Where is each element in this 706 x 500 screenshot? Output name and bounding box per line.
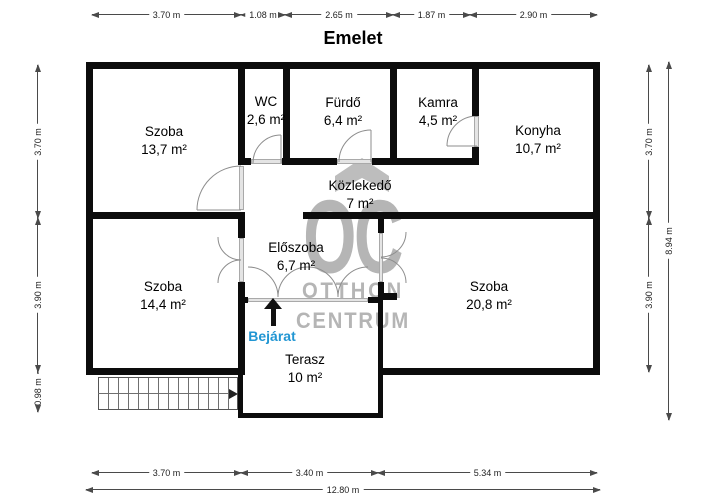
dimension-line: 3.70 m — [92, 14, 241, 15]
dimension-label: 8.94 m — [664, 223, 674, 259]
room-label-kozlekedo: Közlekedő 7 m² — [328, 177, 391, 213]
dimension-line: 1.87 m — [393, 14, 470, 15]
dimension-label: 3.70 m — [149, 468, 185, 478]
plan-title: Emelet — [0, 28, 706, 49]
dimension-line: 3.70 m — [648, 65, 649, 218]
wall — [378, 303, 383, 418]
wall — [238, 297, 248, 303]
dimension-line: 1.08 m — [241, 14, 285, 15]
room-name: WC — [247, 93, 285, 111]
dimension-label: 12.80 m — [323, 485, 364, 495]
room-name: Konyha — [515, 122, 561, 140]
room-name: Kamra — [418, 94, 458, 112]
dimension-label: 1.87 m — [414, 10, 450, 20]
wall — [245, 158, 251, 165]
room-label-eloszoba: Előszoba 6,7 m² — [268, 239, 324, 275]
room-label-szoba-137: Szoba 13,7 m² — [141, 123, 187, 159]
room-label-konyha: Konyha 10,7 m² — [515, 122, 561, 158]
dimension-label: 5.34 m — [470, 468, 506, 478]
dimension-line: 3.70 m — [92, 472, 241, 473]
room-label-furdo: Fürdő 6,4 m² — [324, 94, 362, 130]
dimension-line: 2.65 m — [285, 14, 393, 15]
wall — [372, 158, 479, 165]
dimension-label: 0.98 m — [33, 374, 43, 410]
room-name: Terasz — [285, 351, 325, 369]
room-name: Fürdő — [324, 94, 362, 112]
room-name: Szoba — [466, 278, 512, 296]
dimension-label: 3.70 m — [33, 124, 43, 160]
door-arcs — [0, 0, 706, 500]
entrance-arrowhead-icon — [264, 298, 282, 309]
room-name: Közlekedő — [328, 177, 391, 195]
room-name: Szoba — [141, 123, 187, 141]
dimension-line: 3.90 m — [37, 218, 38, 372]
wall — [238, 62, 245, 165]
entrance-label: Bejárat — [248, 328, 295, 344]
dimension-label: 2.90 m — [516, 10, 552, 20]
dimension-label: 1.08 m — [245, 10, 281, 20]
room-area: 4,5 m² — [418, 112, 458, 130]
dimension-label: 2.65 m — [321, 10, 357, 20]
room-area: 10 m² — [285, 369, 325, 387]
room-label-szoba-144: Szoba 14,4 m² — [140, 278, 186, 314]
room-label-kamra: Kamra 4,5 m² — [418, 94, 458, 130]
room-label-szoba-208: Szoba 20,8 m² — [466, 278, 512, 314]
dimension-line: 3.70 m — [37, 65, 38, 218]
wall — [86, 212, 245, 219]
wall — [303, 212, 600, 219]
wall — [378, 368, 600, 375]
room-area: 13,7 m² — [141, 141, 187, 159]
room-area: 6,4 m² — [324, 112, 362, 130]
dimension-label: 3.40 m — [292, 468, 328, 478]
wall — [390, 62, 397, 162]
dimension-line: 2.90 m — [470, 14, 597, 15]
wall — [238, 282, 245, 368]
wall — [383, 293, 397, 300]
wall — [238, 375, 243, 418]
wall — [238, 413, 383, 418]
wall — [86, 368, 245, 375]
wall — [378, 219, 384, 233]
dimension-line: 12.80 m — [86, 489, 600, 490]
dimension-line: 3.40 m — [241, 472, 378, 473]
room-area: 14,4 m² — [140, 296, 186, 314]
room-label-wc: WC 2,6 m² — [247, 93, 285, 129]
wall — [86, 62, 600, 69]
wall — [238, 219, 245, 238]
room-area: 2,6 m² — [247, 111, 285, 129]
dimension-line: 3.90 m — [648, 218, 649, 372]
dimension-label: 3.70 m — [149, 10, 185, 20]
room-area: 10,7 m² — [515, 140, 561, 158]
entrance-arrow-icon — [271, 308, 276, 326]
floor-plan: Emelet OC OTTHON CENTRUM — [0, 0, 706, 500]
dimension-label: 3.90 m — [33, 277, 43, 313]
dimension-line: 0.98 m — [37, 372, 38, 412]
dimension-label: 3.70 m — [644, 124, 654, 160]
room-name: Előszoba — [268, 239, 324, 257]
room-area: 6,7 m² — [268, 257, 324, 275]
room-name: Szoba — [140, 278, 186, 296]
wall — [282, 158, 337, 165]
dimension-line: 8.94 m — [668, 62, 669, 420]
wall — [472, 62, 479, 116]
dimension-label: 3.90 m — [644, 277, 654, 313]
room-area: 7 m² — [328, 195, 391, 213]
room-area: 20,8 m² — [466, 296, 512, 314]
dimension-line: 5.34 m — [378, 472, 597, 473]
room-label-terasz: Terasz 10 m² — [285, 351, 325, 387]
